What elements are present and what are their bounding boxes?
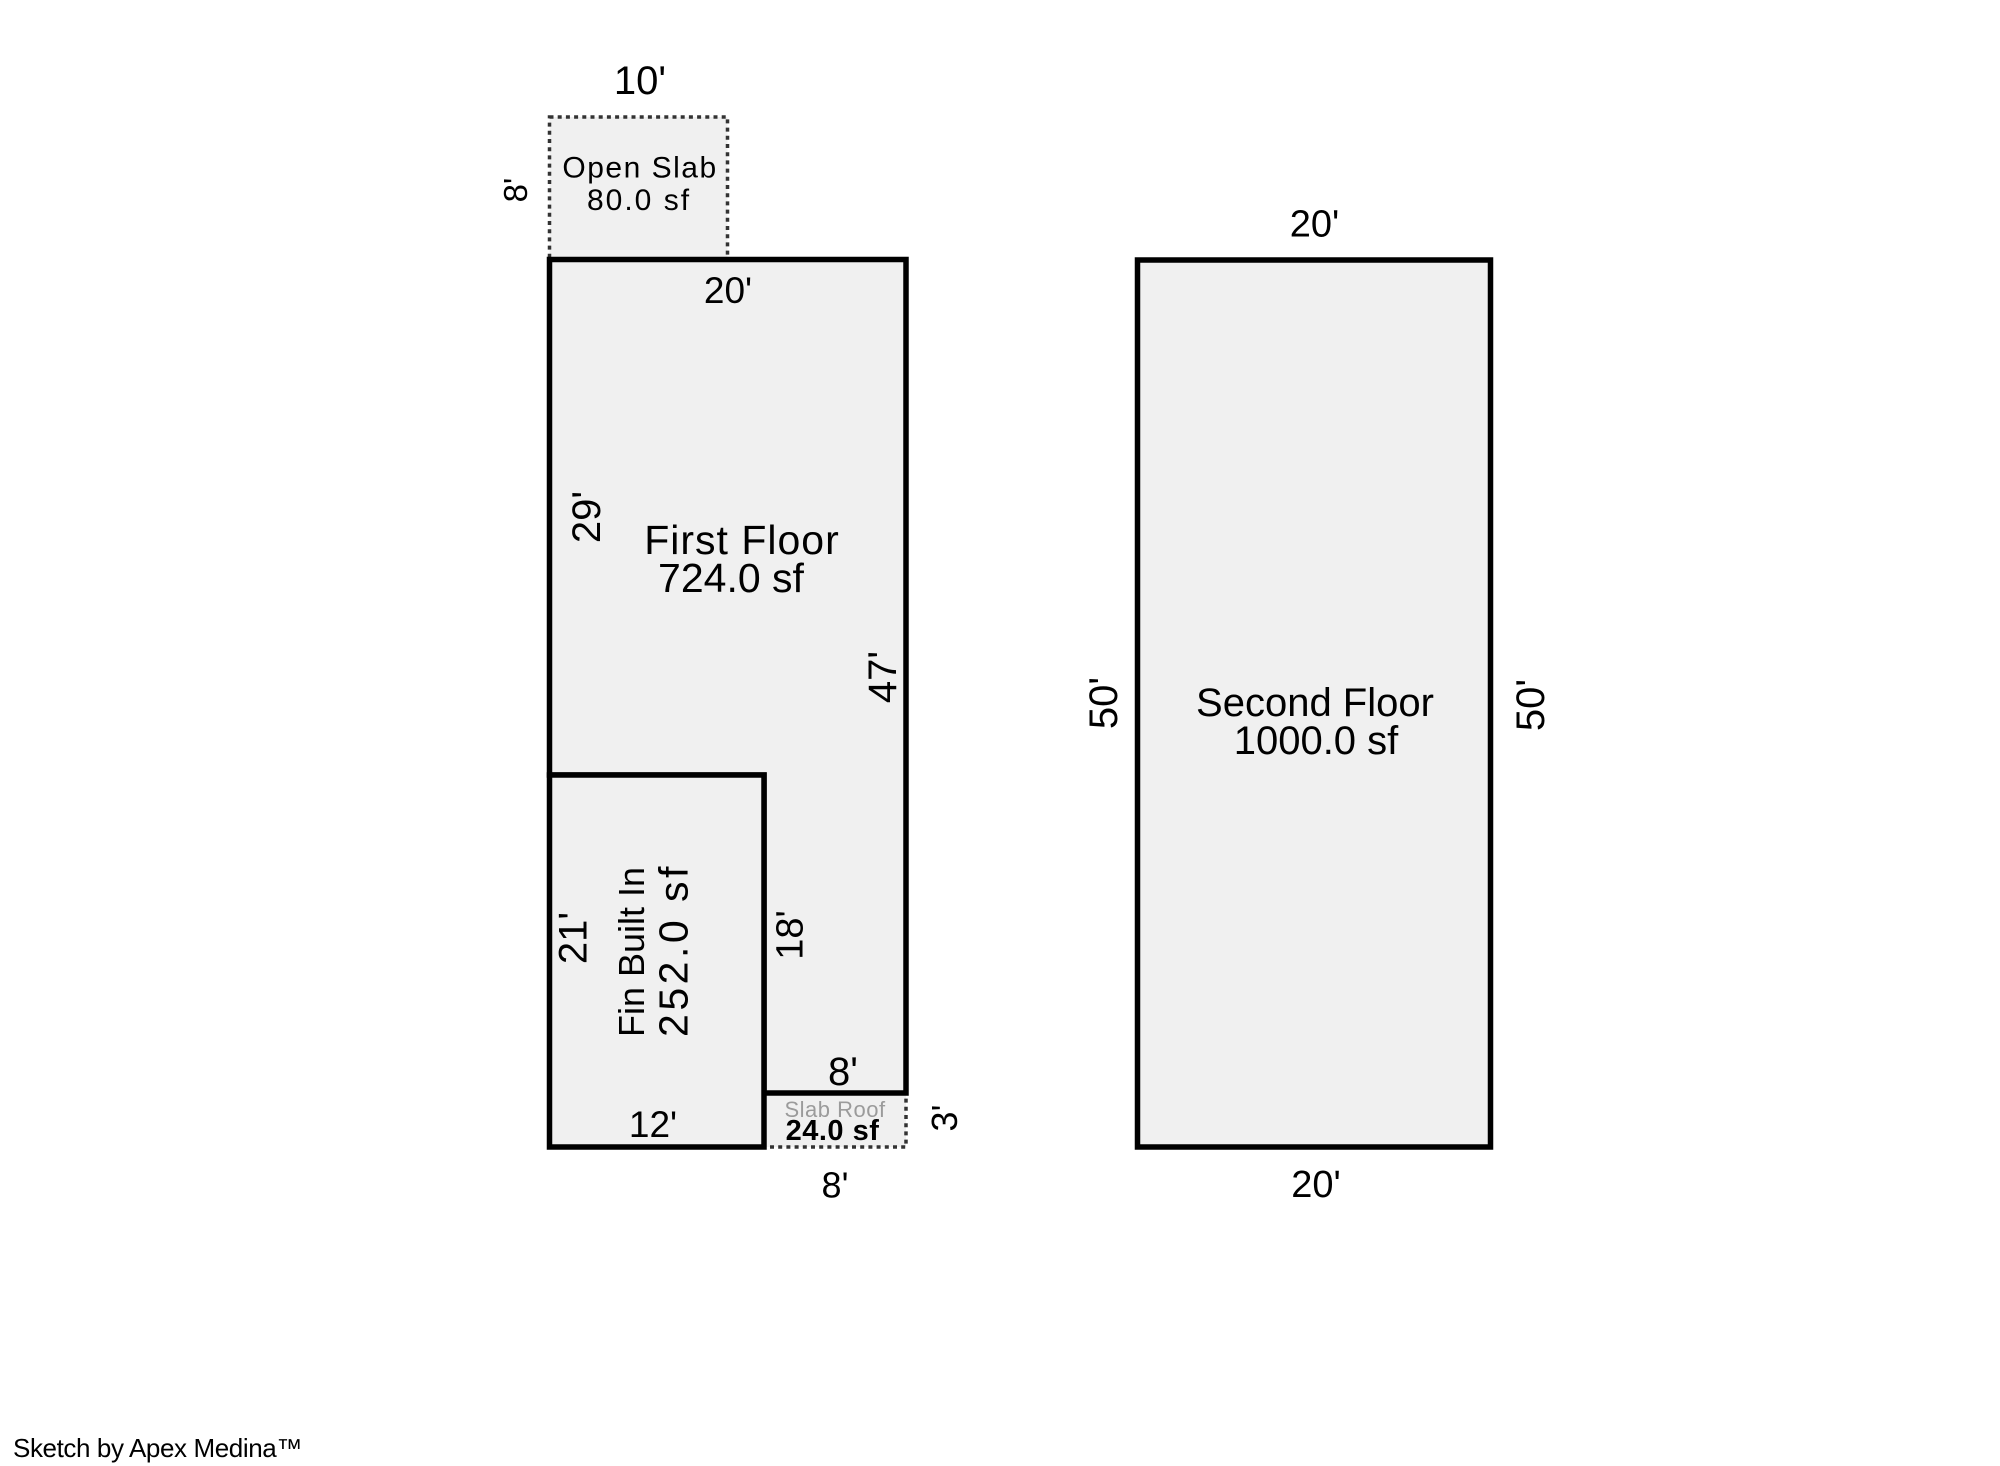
svg-text:12': 12' bbox=[629, 1104, 677, 1145]
svg-text:50': 50' bbox=[1509, 679, 1553, 731]
svg-text:Open Slab: Open Slab bbox=[562, 152, 717, 185]
svg-text:3': 3' bbox=[924, 1105, 965, 1132]
svg-text:8': 8' bbox=[828, 1050, 858, 1094]
svg-text:20': 20' bbox=[1291, 1164, 1341, 1206]
svg-text:20': 20' bbox=[1290, 204, 1340, 246]
svg-text:724.0 sf: 724.0 sf bbox=[658, 555, 804, 601]
svg-text:1000.0 sf: 1000.0 sf bbox=[1234, 719, 1399, 763]
svg-text:29': 29' bbox=[565, 491, 609, 543]
svg-text:20': 20' bbox=[704, 270, 752, 311]
svg-text:8': 8' bbox=[497, 178, 534, 203]
svg-text:50': 50' bbox=[1082, 677, 1126, 729]
svg-text:18': 18' bbox=[770, 910, 812, 960]
svg-text:24.0 sf: 24.0 sf bbox=[786, 1115, 880, 1147]
svg-text:8': 8' bbox=[822, 1165, 849, 1206]
svg-text:Sketch by Apex Medina™: Sketch by Apex Medina™ bbox=[13, 1433, 302, 1463]
svg-text:80.0 sf: 80.0 sf bbox=[587, 184, 691, 217]
svg-text:21': 21' bbox=[552, 912, 596, 964]
svg-text:252.0 sf: 252.0 sf bbox=[651, 863, 697, 1037]
svg-text:10': 10' bbox=[614, 59, 666, 103]
svg-text:47': 47' bbox=[861, 651, 905, 703]
svg-text:Fin Built In: Fin Built In bbox=[611, 867, 652, 1037]
